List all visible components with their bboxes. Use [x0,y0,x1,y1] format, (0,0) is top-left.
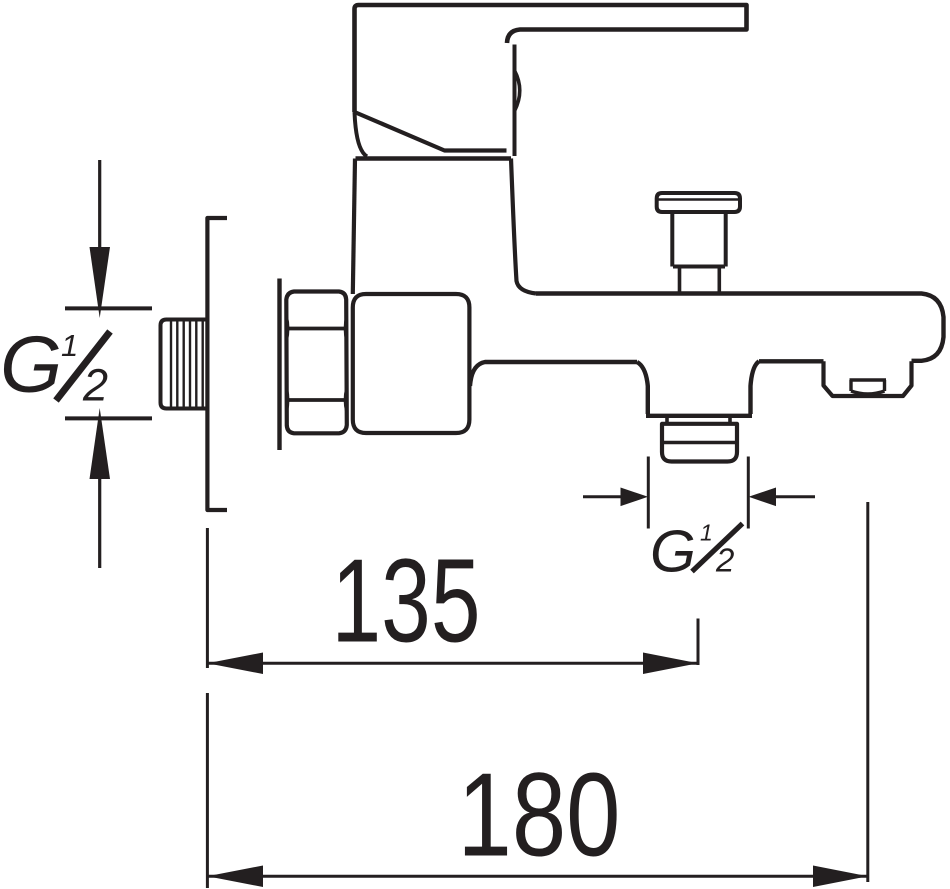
outlet-bell-right [751,361,760,414]
body-top-and-end-cap [536,294,944,361]
technical-drawing-page: G 1 2 G 1 2 135 180 [0,0,950,889]
inlet-union-block [353,294,470,433]
diverter-knob [657,193,740,292]
mixer-fixture [161,5,944,510]
aerator-inner-insert [850,380,887,394]
dim-180-label: 180 [458,749,621,882]
arrowhead-180-left [207,866,263,888]
dim-135-label: 135 [332,535,481,668]
arrowhead-135-right [643,653,698,675]
outlet-thread-label: G 1 2 [650,519,743,585]
outlet-thread-denominator: 2 [715,542,734,579]
arrowhead-180-right [813,866,868,888]
handle-grip-underside [355,112,507,151]
hex-nut-outline [286,292,347,434]
cartridge-right-edge [511,159,536,294]
arrowhead-135-left [207,653,263,675]
shower-hose-outlet [637,361,759,461]
wall-thread-numerator: 1 [61,328,78,363]
outlet-bell-left [637,362,648,414]
dim-outlet-thread: G 1 2 [583,457,815,585]
wall-surface-line [207,218,227,510]
body-underside-left [470,362,637,386]
inlet-hex-nut [286,292,347,434]
outlet-thread-g: G [650,519,696,585]
wall-thread-g: G [0,320,62,409]
wall-thread-denominator: 2 [82,360,108,411]
outlet-thread-numerator: 1 [700,520,713,546]
dim-180: 180 [207,502,867,888]
wall-thread-hatch-lines [171,322,203,407]
diverter-cap [657,193,740,212]
dim-wall-thread: G 1 2 [0,160,152,568]
spout-aerator-outlet [824,361,912,396]
outlet-arrowhead-right-pointing [621,488,649,507]
diverter-neck [672,212,725,267]
handle-lever-outline [355,5,747,112]
wall-thread-label: G 1 2 [0,320,110,411]
cartridge-left-edge [353,159,355,295]
diverter-stem [680,267,720,292]
outlet-arrowhead-left-pointing [749,488,776,507]
drawing-canvas: G 1 2 G 1 2 135 180 [0,0,950,889]
dim-135: 135 [207,528,698,674]
